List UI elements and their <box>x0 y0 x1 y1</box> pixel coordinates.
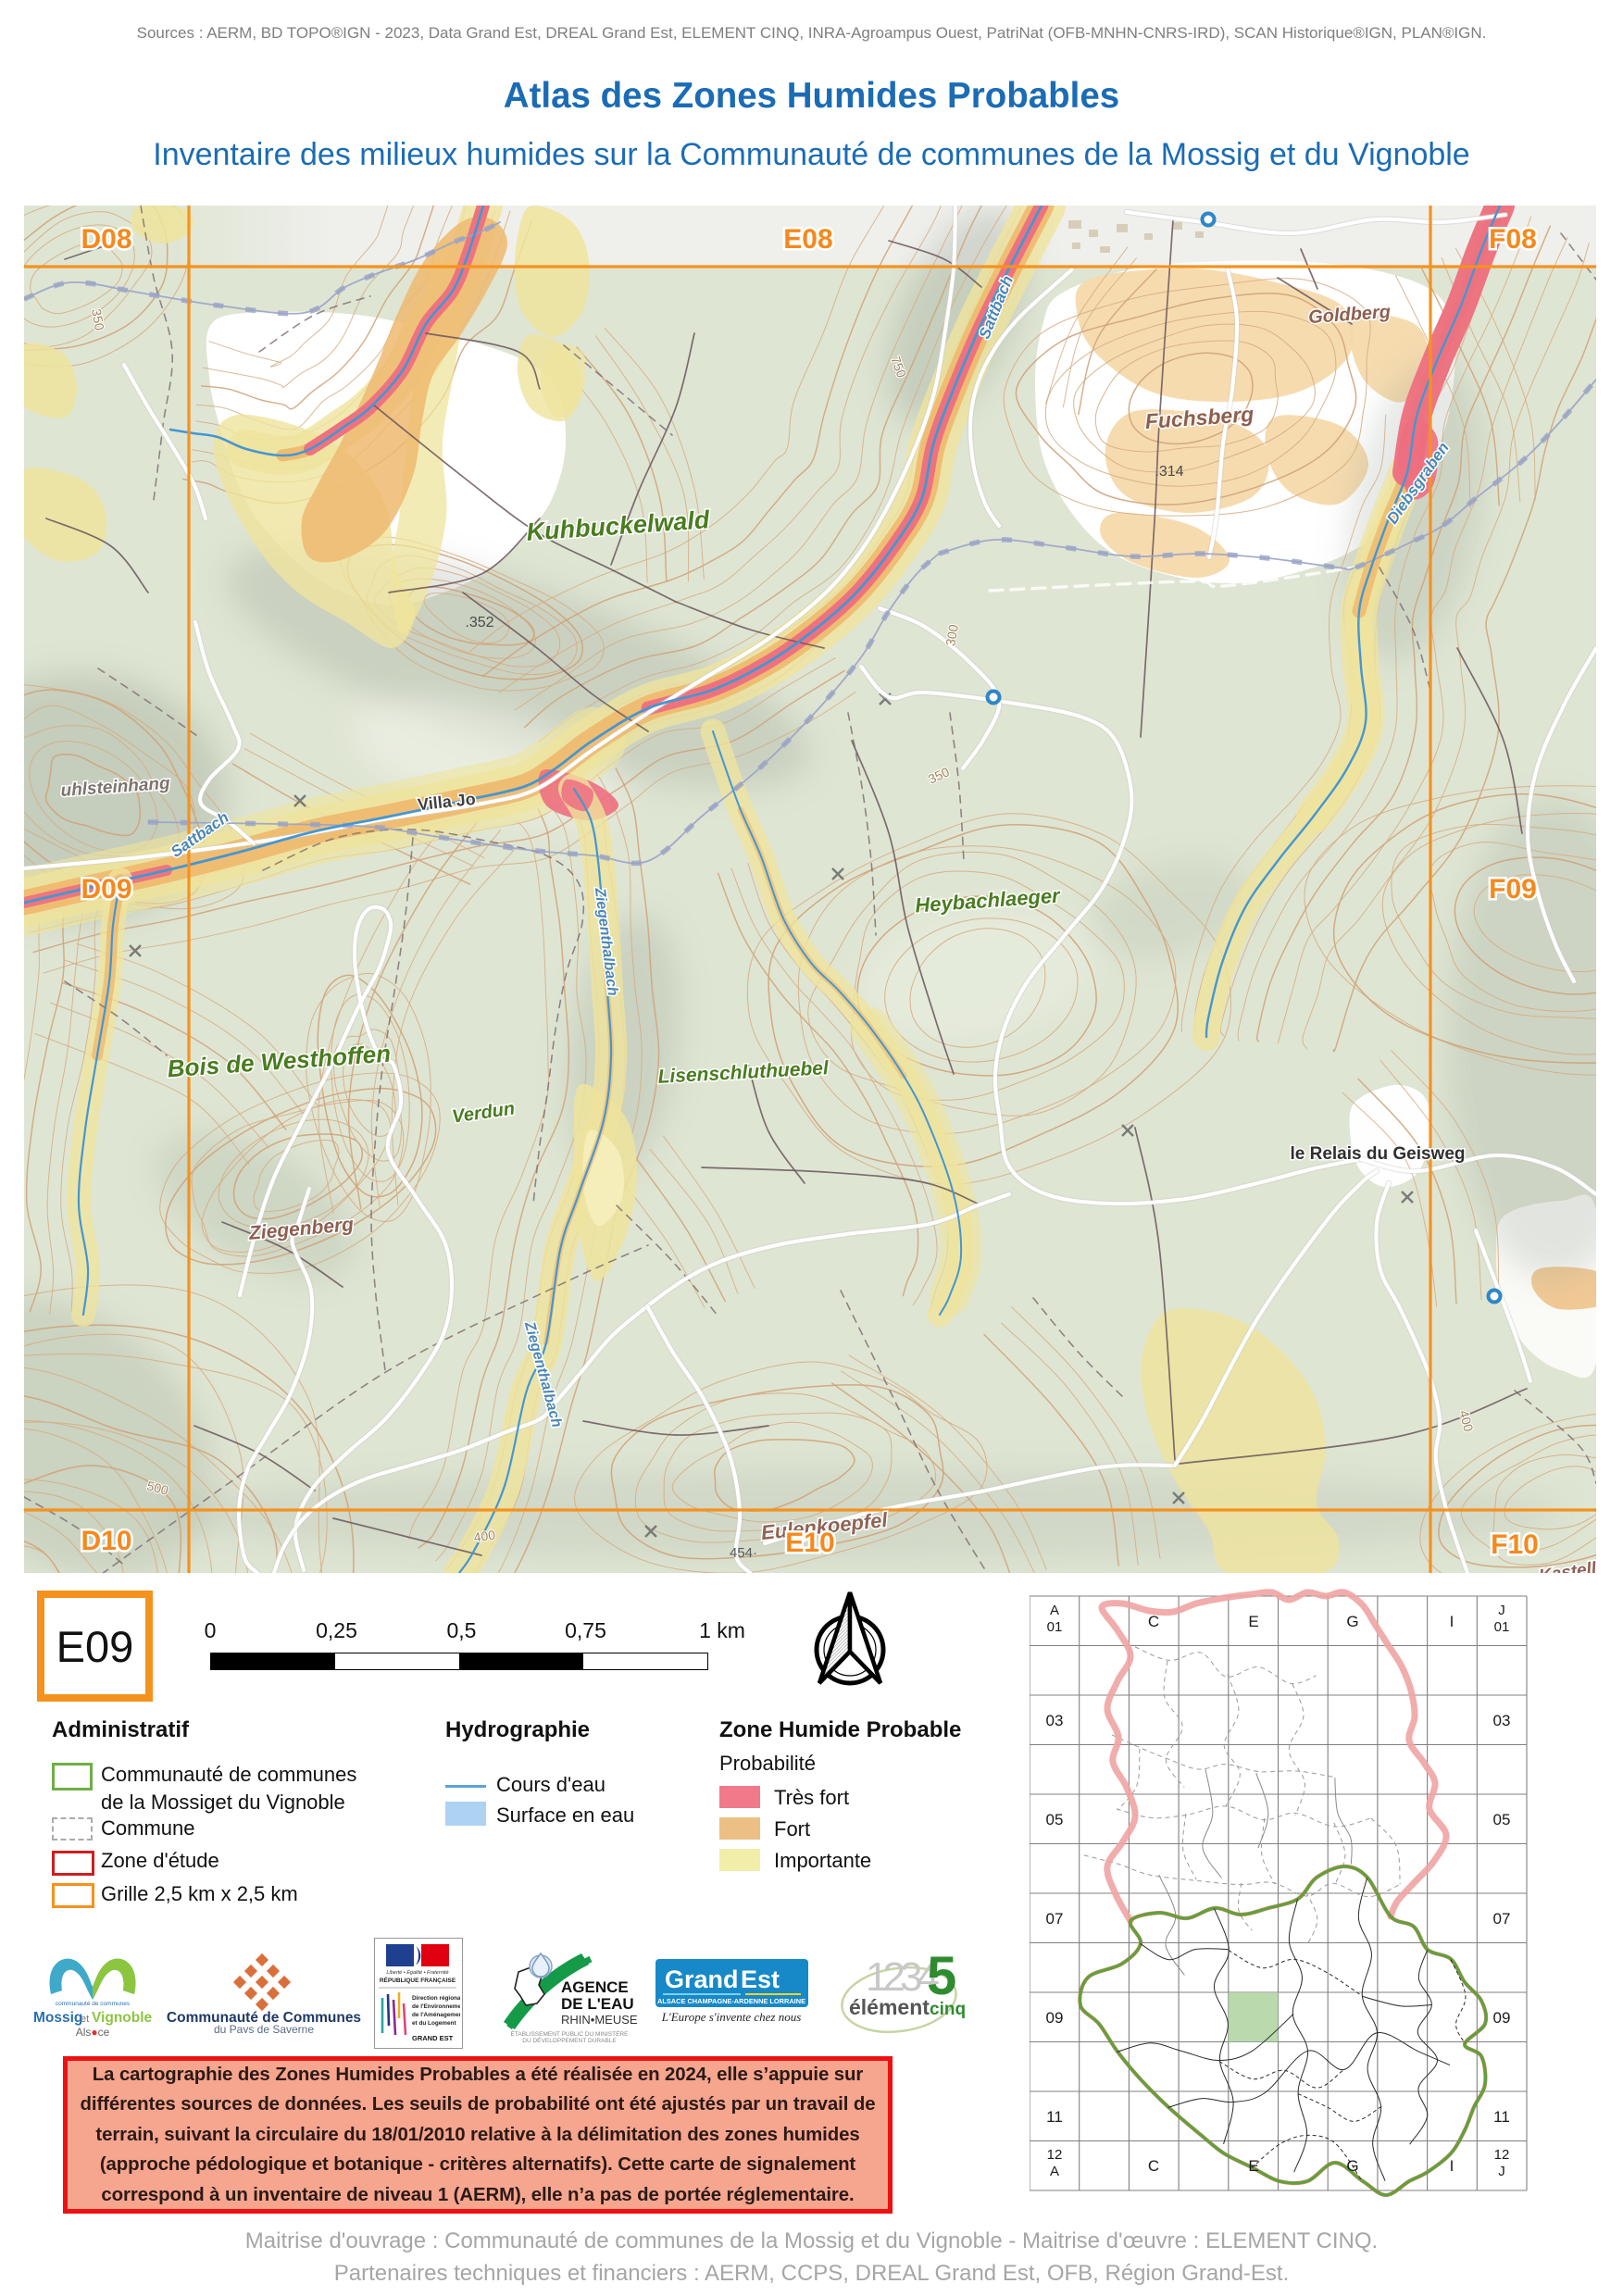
svg-text:Grand: Grand <box>665 1965 739 1993</box>
svg-text:454·: 454· <box>730 1545 757 1561</box>
svg-text:E: E <box>1248 1613 1258 1630</box>
svg-text:ALSACE CHAMPAGNE-ARDENNE LORRA: ALSACE CHAMPAGNE-ARDENNE LORRAINE <box>657 1997 805 2005</box>
svg-text:A: A <box>1050 2164 1059 2179</box>
svg-text:Liberté • Égalité • Fraternité: Liberté • Égalité • Fraternité <box>386 1969 448 1976</box>
svg-text:Direction régionale: Direction régionale <box>412 1995 460 2002</box>
svg-text:09: 09 <box>1046 2009 1064 2027</box>
svg-text:07: 07 <box>1493 1910 1511 1928</box>
svg-text:ÉTABLISSEMENT PUBLIC DU MINIST: ÉTABLISSEMENT PUBLIC DU MINISTÈRE <box>511 2029 630 2038</box>
svg-text:D10: D10 <box>81 1526 131 1556</box>
svg-text:Als●ce: Als●ce <box>76 2026 110 2039</box>
svg-text:élément: élément <box>849 1995 930 2019</box>
svg-text:E08: E08 <box>783 224 832 255</box>
svg-text:cinq: cinq <box>930 2000 966 2019</box>
svg-text:01: 01 <box>1047 1619 1063 1635</box>
svg-text:01: 01 <box>1494 1619 1510 1635</box>
svg-text:RHIN•MEUSE: RHIN•MEUSE <box>561 2013 638 2027</box>
svg-text:AGENCE: AGENCE <box>561 1978 629 1996</box>
svg-text:09: 09 <box>1493 2009 1511 2027</box>
svg-text:le Relais du Geisweg: le Relais du Geisweg <box>1290 1144 1465 1164</box>
svg-text:C: C <box>1148 1613 1159 1630</box>
svg-text:GRAND EST: GRAND EST <box>412 2034 454 2042</box>
svg-text:de l'Aménagement: de l'Aménagement <box>412 2012 460 2018</box>
svg-text:du Pays de Saverne: du Pays de Saverne <box>214 2023 314 2033</box>
svg-text:et: et <box>81 2014 89 2025</box>
svg-text:F08: F08 <box>1489 224 1537 255</box>
svg-text:A: A <box>1050 1603 1059 1618</box>
svg-text:F10: F10 <box>1491 1529 1539 1560</box>
svg-text:Vignoble: Vignoble <box>92 2010 153 2026</box>
svg-text:G: G <box>1346 1613 1358 1630</box>
svg-text:I: I <box>1450 1613 1454 1630</box>
svg-text:D09: D09 <box>81 874 131 905</box>
svg-text:03: 03 <box>1046 1712 1064 1729</box>
svg-text:de l'Environnement,: de l'Environnement, <box>412 2003 460 2010</box>
svg-text:et du Logement: et du Logement <box>412 2020 456 2027</box>
svg-text:E: E <box>1248 2157 1258 2175</box>
svg-text:J: J <box>1498 1603 1505 1618</box>
svg-text:03: 03 <box>1493 1712 1511 1729</box>
svg-text:Mossig: Mossig <box>33 2010 82 2026</box>
svg-text:D08: D08 <box>81 224 131 255</box>
svg-text:.352: .352 <box>465 615 493 630</box>
svg-text:I: I <box>1450 2157 1454 2175</box>
svg-text:11: 11 <box>1046 2108 1063 2126</box>
svg-text:F09: F09 <box>1489 874 1537 905</box>
svg-text:communauté de communes: communauté de communes <box>56 2001 131 2007</box>
svg-text:DE L'EAU: DE L'EAU <box>561 1995 634 2013</box>
svg-text:.314: .314 <box>1155 464 1183 480</box>
svg-text:11: 11 <box>1493 2108 1510 2126</box>
svg-text:Est: Est <box>741 1965 780 1993</box>
svg-text:E10: E10 <box>785 1528 834 1558</box>
svg-text:12: 12 <box>1494 2147 1510 2163</box>
svg-text:RÉPUBLIQUE FRANÇAISE: RÉPUBLIQUE FRANÇAISE <box>380 1976 456 1984</box>
svg-text:G: G <box>1346 2157 1358 2175</box>
svg-text:C: C <box>1148 2157 1159 2175</box>
svg-text:12: 12 <box>1047 2147 1063 2163</box>
svg-text:5: 5 <box>927 1946 956 2006</box>
svg-text:05: 05 <box>1046 1811 1064 1828</box>
svg-text:07: 07 <box>1046 1910 1064 1928</box>
svg-text:05: 05 <box>1493 1811 1511 1828</box>
svg-text:400: 400 <box>473 1527 497 1544</box>
svg-text:J: J <box>1498 2164 1505 2179</box>
svg-text:DU DÉVELOPPEMENT DURABLE: DU DÉVELOPPEMENT DURABLE <box>522 2036 617 2042</box>
svg-text:L'Europe s'invente chez nous: L'Europe s'invente chez nous <box>661 2010 802 2024</box>
